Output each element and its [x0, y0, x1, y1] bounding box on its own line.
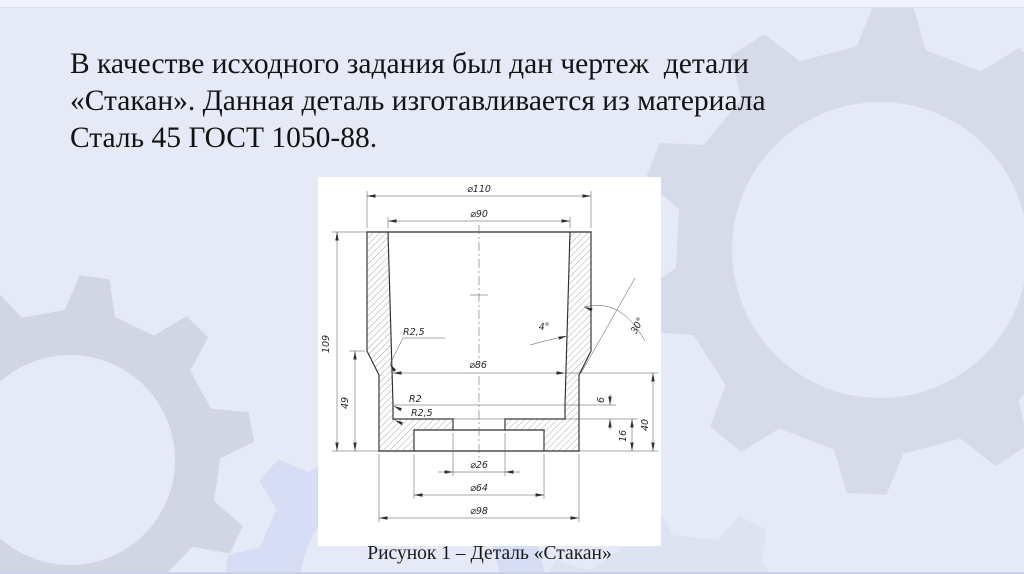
- dim-label-d90: ⌀90: [470, 209, 488, 220]
- dim-label-angle-4: 4°: [539, 322, 550, 333]
- figure-caption: Рисунок 1 – Деталь «Стакан»: [308, 543, 671, 565]
- paragraph-line-3: Сталь 45 ГОСТ 1050-88.: [70, 120, 950, 157]
- figure-panel: ⌀110 ⌀90 ⌀86 ⌀26 ⌀64 ⌀98 109 49 40 16 6 …: [318, 177, 661, 546]
- dim-label-6: 6: [596, 397, 607, 403]
- dim-label-16: 16: [618, 430, 629, 442]
- dim-label-d98: ⌀98: [470, 506, 488, 517]
- slide: { "slide": { "paragraph": { "line1": "В …: [0, 0, 1024, 574]
- dim-label-r25-upper: R2,5: [403, 327, 425, 338]
- dim-label-d110: ⌀110: [467, 184, 491, 195]
- slide-top-strip: [0, 0, 1024, 8]
- dim-label-40: 40: [640, 419, 651, 431]
- section-left-half: [367, 232, 453, 451]
- dim-label-angle-30: 30°: [629, 316, 647, 336]
- paragraph-line-2: «Стакан». Данная деталь изготавливается …: [70, 83, 950, 120]
- dim-label-d64: ⌀64: [470, 483, 488, 494]
- dim-label-d86: ⌀86: [469, 360, 487, 371]
- dim-label-r2: R2: [409, 394, 422, 405]
- intro-paragraph: В качестве исходного задания был дан чер…: [70, 46, 950, 157]
- paragraph-line-1: В качестве исходного задания был дан чер…: [70, 46, 950, 83]
- dim-label-49: 49: [340, 397, 351, 409]
- technical-drawing: ⌀110 ⌀90 ⌀86 ⌀26 ⌀64 ⌀98 109 49 40 16 6 …: [318, 177, 661, 546]
- dim-label-r25-lower: R2,5: [411, 408, 433, 419]
- gear-decoration: [0, 275, 254, 574]
- centerline: [470, 225, 488, 462]
- dim-label-d26: ⌀26: [470, 460, 488, 471]
- dim-label-109: 109: [321, 335, 332, 353]
- section-right-half: [505, 232, 591, 451]
